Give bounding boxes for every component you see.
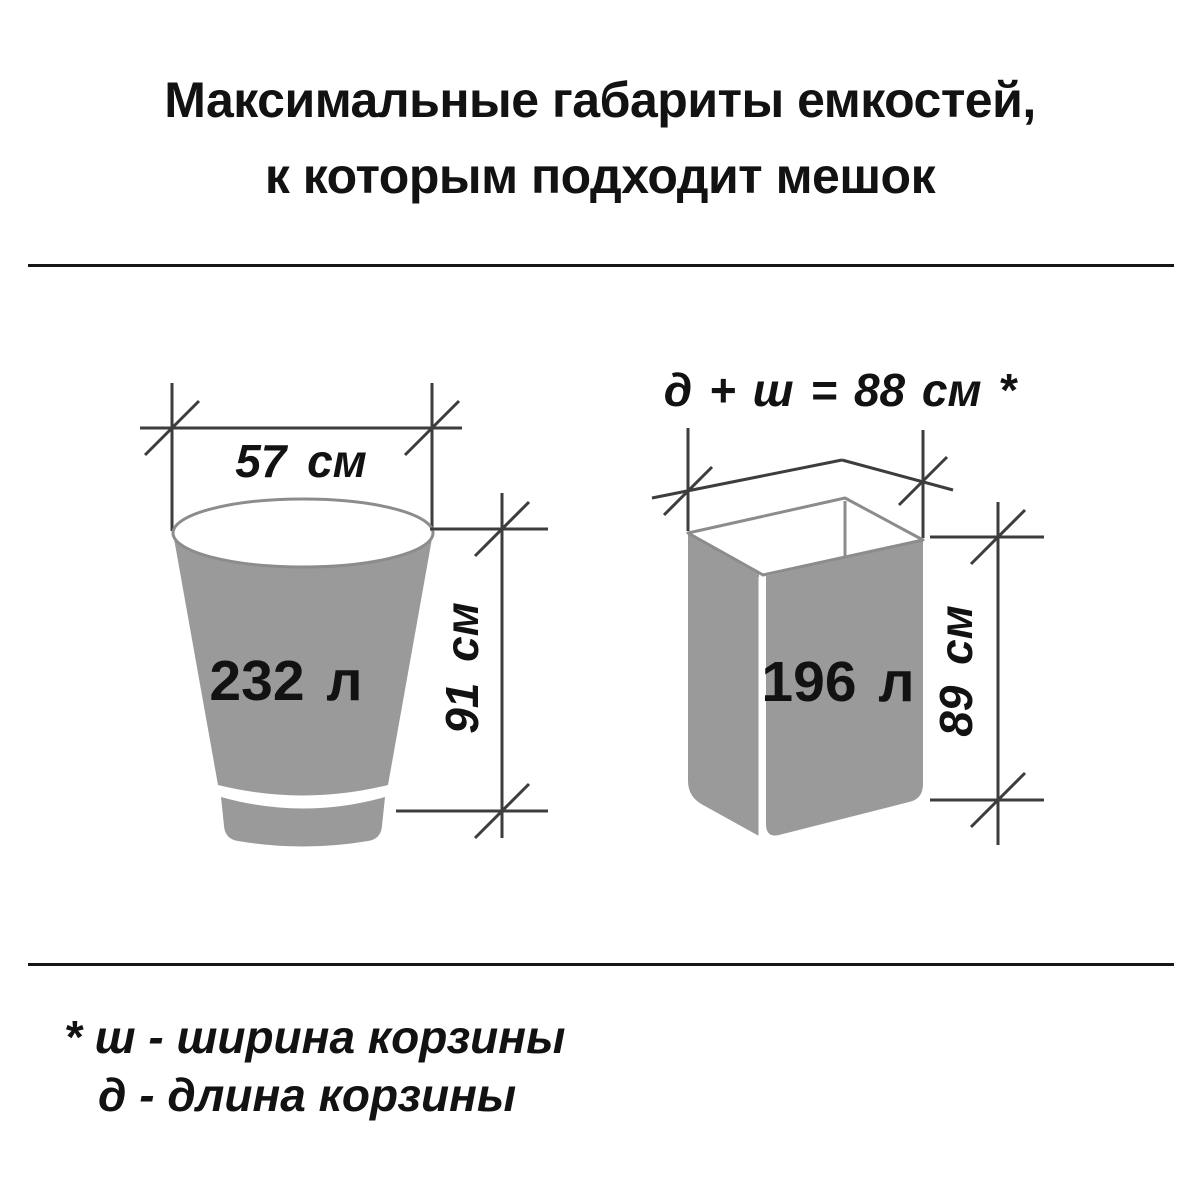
basket-volume-label: 196 л: [761, 649, 914, 715]
dimension-line: [652, 460, 842, 498]
footnote-line-2: д - длина корзины: [98, 1066, 565, 1124]
basket-left-face: [688, 533, 759, 836]
bucket-width-label: 57 см: [235, 434, 367, 488]
basket-height-label: 89 см: [929, 605, 983, 737]
page-root: Максимальные габариты емкостей, к которы…: [0, 0, 1200, 1200]
basket-formula-label: д + ш = 88 см *: [664, 363, 1016, 417]
dimension-line: [842, 460, 953, 490]
footnote-line-1: * ш - ширина корзины: [64, 1008, 565, 1066]
bucket-rim-ellipse: [173, 499, 433, 567]
bucket-height-label: 91 см: [435, 602, 489, 734]
basket-figure: [652, 428, 1044, 845]
bucket-base: [221, 797, 385, 847]
bucket-volume-label: 232 л: [209, 648, 362, 714]
footnote: * ш - ширина корзины д - длина корзины: [64, 1008, 565, 1124]
